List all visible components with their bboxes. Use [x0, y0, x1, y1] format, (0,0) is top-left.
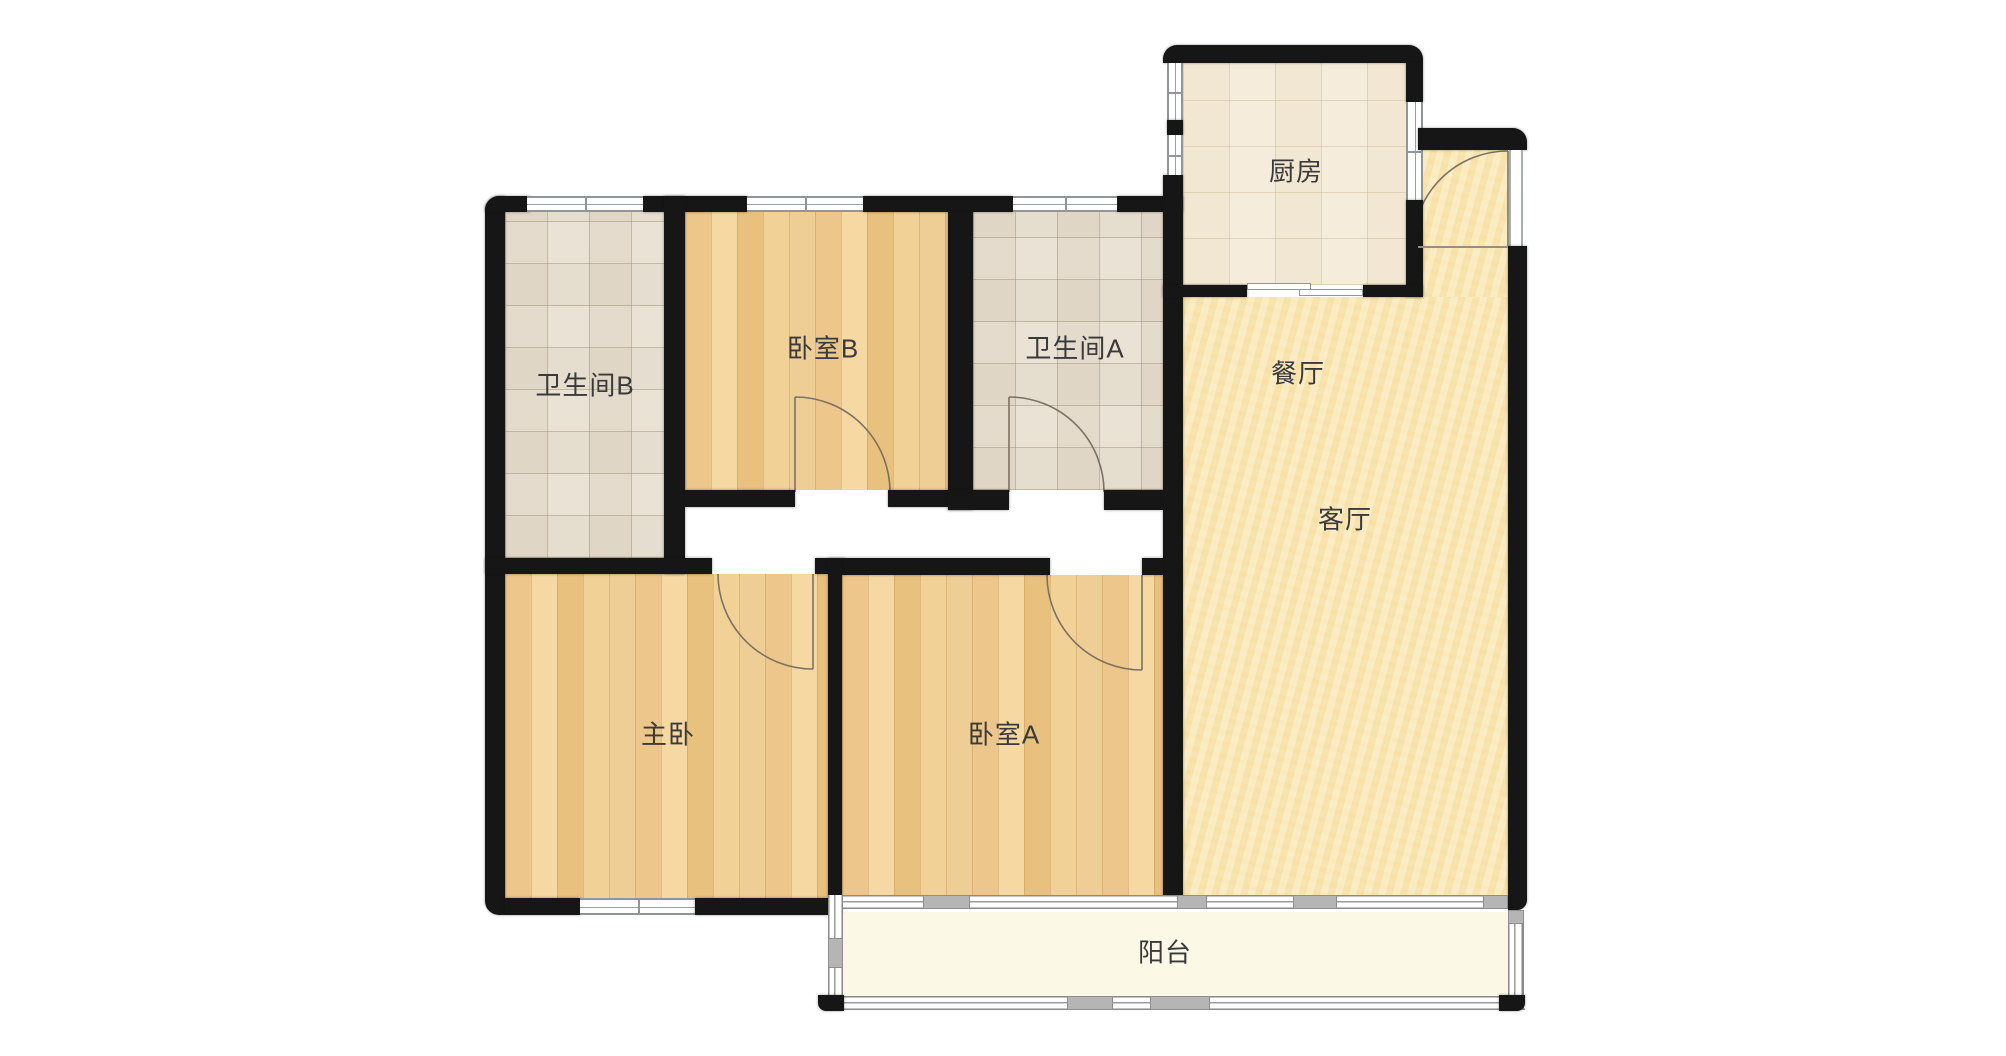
wall-kitchen-top — [1163, 45, 1423, 63]
floor-plan: 厨房 餐厅 客厅 卫生间B 卧室B 卫生间A 主卧 卧室A 阳台 — [0, 0, 2006, 1056]
wall-bedroom-b-bottom — [685, 490, 795, 507]
window-kitchen-right — [1406, 102, 1423, 200]
window-bathroom-a — [1013, 196, 1117, 212]
room-living-dining-floor — [1183, 297, 1508, 897]
window-kitchen-left — [1167, 135, 1183, 175]
wall-bedroom-b-bottom — [888, 490, 948, 507]
wall-bedroom-a-top — [1142, 558, 1163, 575]
wall-bathroom-a-bottom — [948, 490, 1009, 510]
wall-bathroom-a-bottom — [1104, 490, 1163, 510]
corridor-floor — [683, 505, 1163, 558]
window-master-bedroom — [580, 898, 695, 915]
wall-kitchen-left-mullion — [1167, 120, 1183, 135]
balcony-window-panel — [1293, 895, 1337, 909]
wall-kitchen-right — [1406, 200, 1423, 297]
kitchen-sliding-door-panel — [1299, 289, 1363, 296]
wall-outer-right — [1508, 246, 1527, 910]
room-label-bedroom-a: 卧室A — [968, 715, 1040, 752]
room-label-bedroom-b: 卧室B — [787, 329, 859, 366]
wall-kitchen-bottom — [1163, 285, 1247, 297]
balcony-corner-post — [1499, 995, 1525, 1011]
balcony-window-panel — [1067, 996, 1113, 1010]
window-bedroom-b — [747, 196, 863, 212]
balcony-corner-post — [818, 995, 844, 1011]
wall-top-segment — [863, 196, 1013, 212]
wall-top-segment — [643, 196, 747, 212]
room-label-bathroom-a: 卫生间A — [1025, 329, 1124, 366]
wall-master-top — [485, 558, 712, 574]
room-label-kitchen: 厨房 — [1269, 152, 1323, 189]
dining-strip-floor — [1423, 248, 1508, 297]
balcony-window-panel — [1150, 996, 1210, 1010]
entry-hall-floor — [1418, 142, 1508, 248]
wall-bedroom-a-top — [842, 558, 1050, 575]
room-label-balcony: 阳台 — [1138, 933, 1192, 970]
balcony-window-panel — [828, 938, 843, 968]
wall-outer-left — [485, 196, 505, 915]
room-label-master-bedroom: 主卧 — [641, 715, 695, 752]
entry-threshold-line — [1418, 246, 1508, 248]
wall-master-bottom — [505, 898, 580, 915]
room-label-living-room: 客厅 — [1318, 500, 1372, 537]
window-kitchen-left — [1167, 63, 1183, 120]
balcony-window-panel — [923, 895, 970, 909]
balcony-window-panel — [1508, 910, 1524, 924]
wall-kitchen-bottom — [1363, 285, 1423, 297]
room-label-dining-room: 餐厅 — [1271, 354, 1325, 391]
wall-bathroom-b-right — [664, 196, 685, 574]
wall-bedroomb-bathrooma-divider — [948, 212, 973, 510]
balcony-window-panel — [1177, 895, 1207, 909]
wall-top-segment — [485, 196, 530, 212]
entry-door-opening — [1509, 150, 1523, 246]
balcony-window-panel — [1483, 895, 1508, 909]
wall-master-bottom — [695, 898, 828, 915]
wall-living-left — [1163, 175, 1183, 897]
room-label-bathroom-b: 卫生间B — [535, 366, 634, 403]
wall-entry-top — [1418, 128, 1527, 150]
wall-master-bedrooma-divider — [828, 558, 842, 913]
wall-kitchen-right — [1406, 63, 1423, 102]
window-bathroom-b — [527, 196, 643, 212]
